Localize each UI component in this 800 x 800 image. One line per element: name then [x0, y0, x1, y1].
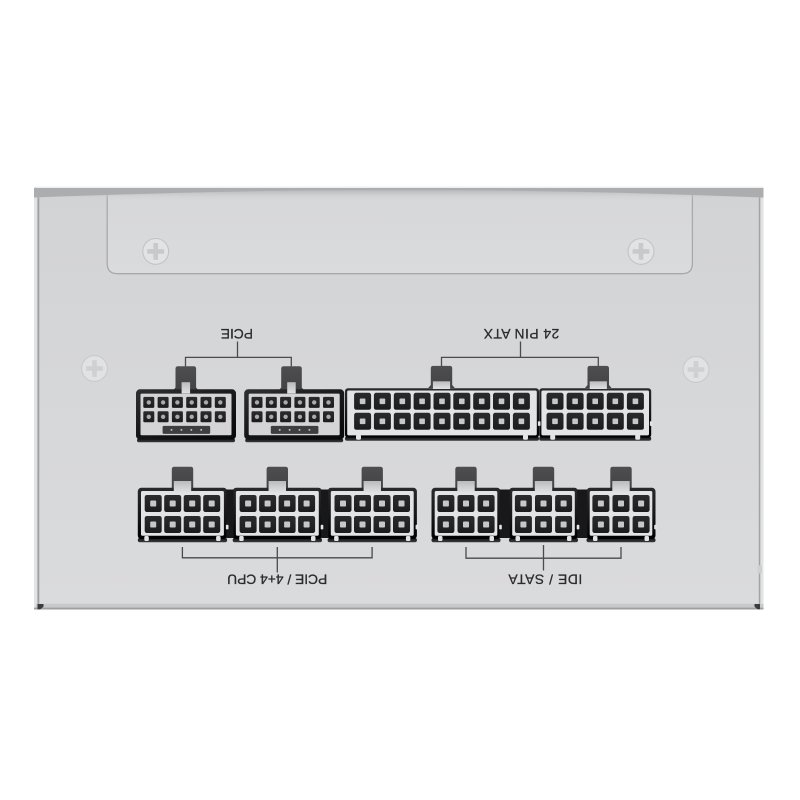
svg-text:PCIE / 4+4 CPU: PCIE / 4+4 CPU: [227, 572, 327, 587]
svg-text:24 PIN ATX: 24 PIN ATX: [483, 326, 559, 341]
svg-text:PCIE: PCIE: [221, 326, 253, 341]
svg-text:IDE / SATA: IDE / SATA: [508, 572, 583, 587]
